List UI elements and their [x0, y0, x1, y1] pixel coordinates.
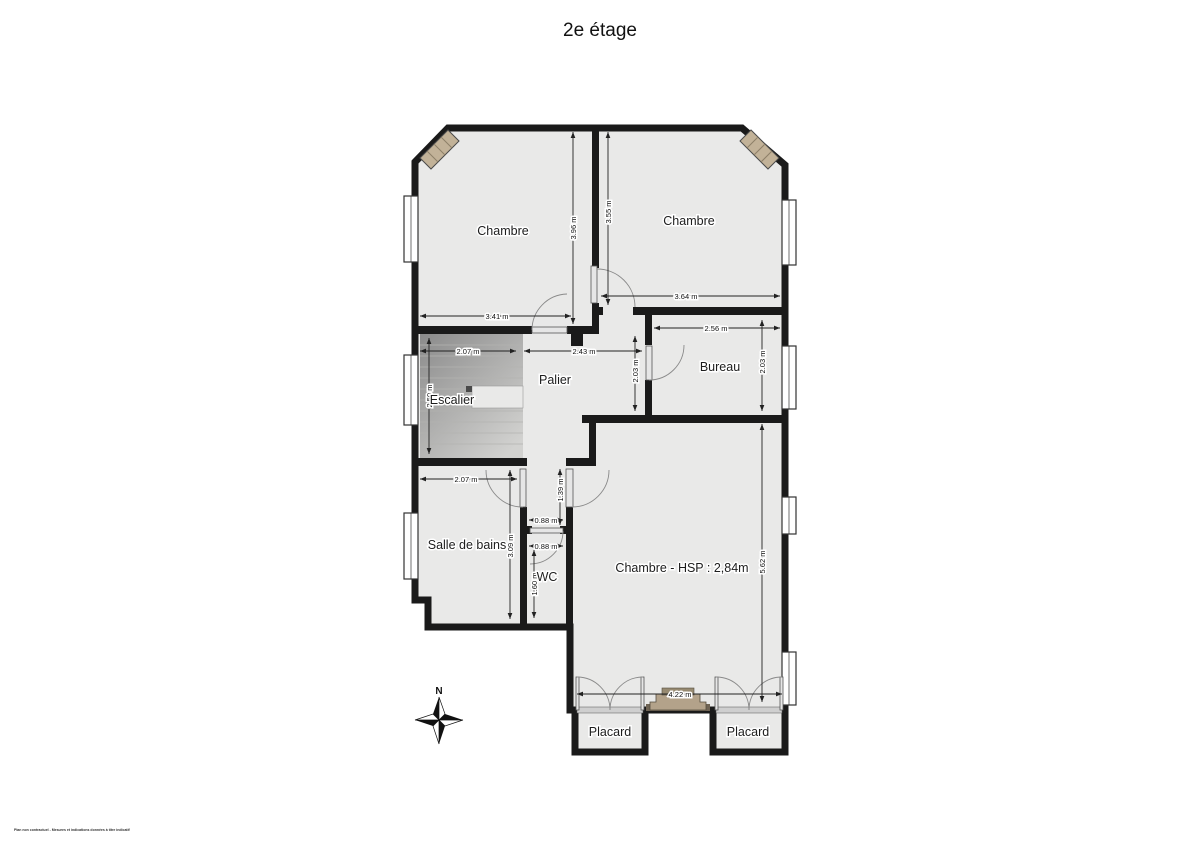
window-chambre-left [404, 196, 418, 262]
room-label-chambre-hsp: Chambre - HSP : 2,84m [615, 561, 748, 575]
dim-label-2-07-sdb: 2.07 m [455, 475, 478, 484]
disclaimer-text: Plan non contractuel - Mesures et indica… [14, 828, 131, 832]
stair-landing-notch [472, 386, 523, 408]
stair-newel [466, 386, 472, 392]
dim-label-2-43: 2.43 m [573, 347, 596, 356]
compass-star-icon [415, 697, 463, 744]
window-chambre-hsp-lower [782, 652, 796, 705]
dim-label-5-62: 5.62 m [758, 551, 767, 574]
room-label-bureau: Bureau [700, 360, 740, 374]
window-bureau [782, 346, 796, 409]
dim-label-3-96: 3.96 m [569, 217, 578, 240]
dim-label-2-03-right: 2.03 m [758, 351, 767, 374]
dim-label-2-56: 2.56 m [705, 324, 728, 333]
page-title: 2e étage [563, 20, 637, 41]
dim-label-3-55: 3.55 m [604, 201, 613, 224]
room-label-wc: WC [537, 570, 558, 584]
dim-label-3-09: 3.09 m [506, 535, 515, 558]
dim-label-4-22: 4.22 m [669, 690, 692, 699]
room-label-placard-left: Placard [589, 725, 631, 739]
room-label-chambre-right: Chambre [663, 214, 714, 228]
dim-label-1-39: 1.39 m [556, 479, 565, 502]
room-label-salle-de-bains: Salle de bains [428, 538, 507, 552]
floor-plan-svg: 2e étage [0, 0, 1200, 849]
dim-label-3-64: 3.64 m [675, 292, 698, 301]
dim-label-2-07-escalier: 2.07 m [457, 347, 480, 356]
window-chambre-hsp-upper [782, 497, 796, 534]
window-escalier [404, 355, 418, 425]
window-chambre-right [782, 200, 796, 265]
floor-plan-page: 2e étage [0, 0, 1200, 849]
window-salle-de-bains [404, 513, 418, 579]
room-label-palier: Palier [539, 373, 571, 387]
dim-label-0-88-lower: 0.88 m [535, 542, 558, 551]
dim-label-0-88-upper: 0.88 m [535, 516, 558, 525]
room-label-escalier: Escalier [430, 393, 474, 407]
north-compass: N [415, 686, 463, 744]
room-label-placard-right: Placard [727, 725, 769, 739]
room-label-chambre-left: Chambre [477, 224, 528, 238]
dim-label-2-03-left: 2.03 m [631, 360, 640, 383]
dim-label-3-41: 3.41 m [486, 312, 509, 321]
north-label: N [435, 686, 442, 697]
